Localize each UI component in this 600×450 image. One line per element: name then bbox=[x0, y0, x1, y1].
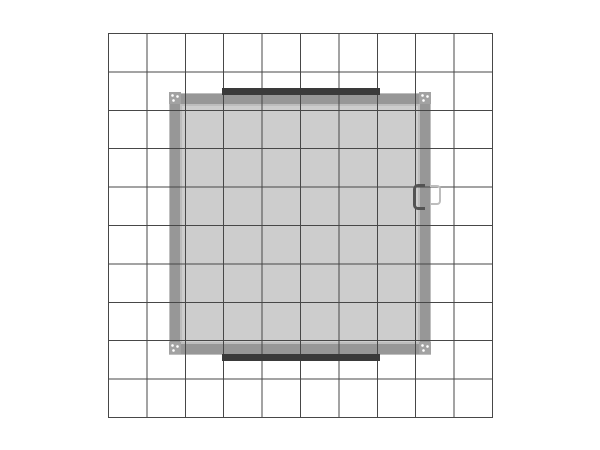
structure-footprint-panel bbox=[170, 94, 430, 354]
bottom-accent-bar bbox=[222, 354, 380, 361]
corner-fitting-bottom-left bbox=[169, 342, 181, 354]
door-handle-outer-bracket-icon bbox=[430, 185, 441, 205]
corner-fitting-top-right bbox=[419, 92, 431, 104]
door-handle-inner-bracket-icon bbox=[413, 184, 425, 210]
plan-view-drawing bbox=[0, 0, 600, 450]
top-accent-bar bbox=[222, 88, 380, 95]
corner-fitting-bottom-right bbox=[419, 342, 431, 354]
corner-fitting-top-left bbox=[169, 92, 181, 104]
